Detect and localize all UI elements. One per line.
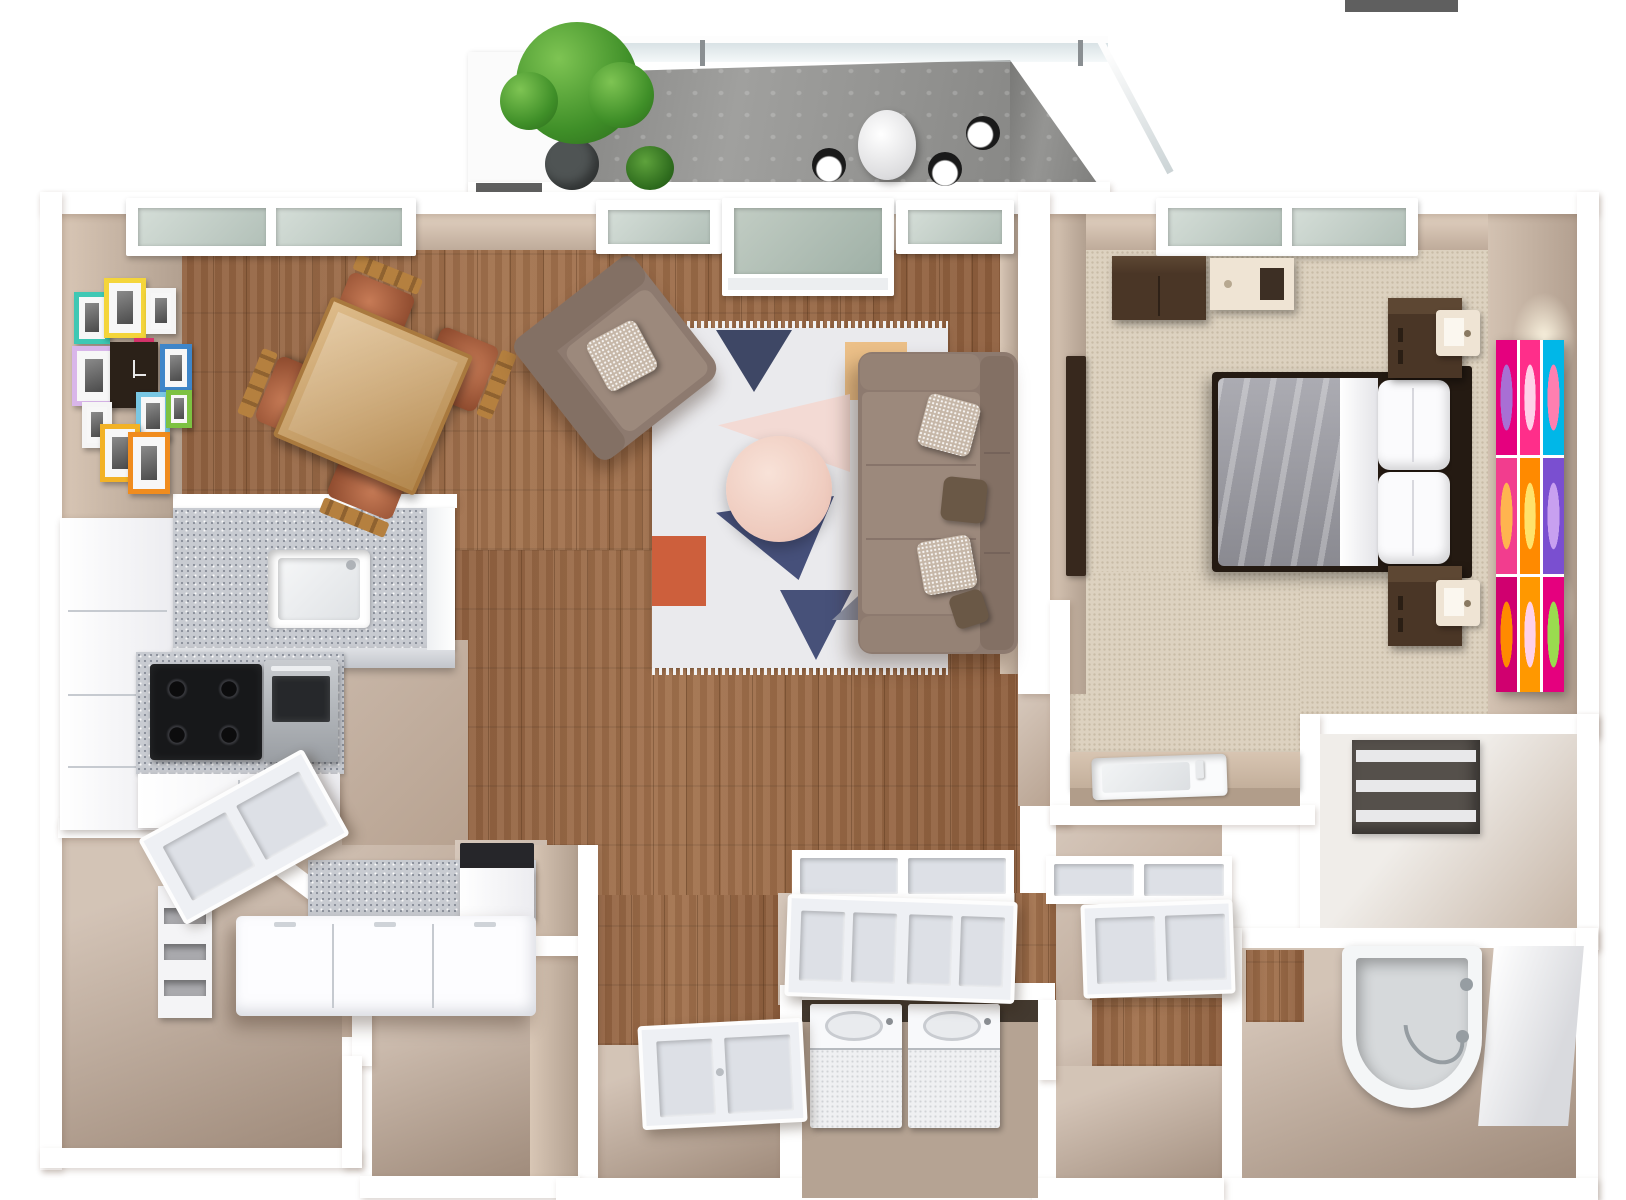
wall-divider-living-bedroom	[1018, 192, 1050, 694]
balcony-floor-wedge	[1010, 60, 1102, 190]
bathtub	[1342, 946, 1482, 1108]
sofa	[858, 352, 1018, 654]
wall-storage-right	[342, 1056, 362, 1168]
pop-art-cell	[1543, 577, 1564, 692]
floor-plan-canvas	[0, 0, 1626, 1200]
burner-icon	[164, 676, 190, 702]
sofa-armrest	[860, 354, 980, 390]
wall-bathroom-top	[1222, 928, 1596, 948]
tub-faucet-icon	[1456, 1030, 1469, 1043]
bathroom-right-panel	[1478, 946, 1584, 1126]
living-right-window	[896, 200, 1014, 254]
pop-art-cell	[1543, 458, 1564, 573]
bedroom-cube-shelf	[1210, 258, 1294, 310]
duvet-gray	[1218, 378, 1340, 566]
left-closet-double-door	[784, 894, 1017, 1004]
wall-bathroom-bottom	[1222, 1178, 1598, 1200]
balcony-glass-railing	[552, 36, 1108, 62]
pop-art-cell	[1496, 577, 1517, 692]
wall-left	[40, 192, 62, 1170]
exterior-ledge-under-planter	[476, 183, 542, 192]
pop-art-cell	[1496, 340, 1517, 455]
railing-post-icon	[1078, 40, 1083, 66]
throw-pillow-brown	[940, 476, 988, 524]
bed	[1212, 372, 1470, 572]
pop-art-cell	[1520, 458, 1541, 573]
picture-frame	[160, 344, 192, 392]
exterior-ledge-top-right	[1345, 0, 1458, 12]
picture-frame-collage	[72, 278, 194, 516]
counter-back-edge	[173, 494, 457, 508]
potted-tree-lobe-icon	[500, 72, 558, 130]
dryer	[908, 1004, 1000, 1128]
door-handle-icon	[716, 1068, 724, 1076]
bedroom-vanity-carpet	[1052, 572, 1300, 758]
wall-oven	[264, 660, 338, 762]
pop-art-canvas	[1496, 340, 1564, 692]
bistro-chair-icon	[966, 116, 1000, 150]
tub-faucet-icon	[1460, 978, 1473, 991]
clock-hand-icon	[133, 374, 146, 376]
bedroom-double-window	[1156, 198, 1418, 256]
kitchen-sink	[268, 550, 370, 628]
dresser	[1112, 256, 1206, 320]
dryer-lid-icon	[923, 1011, 981, 1041]
burner-icon	[164, 722, 190, 748]
rug-shape-navy-bottom-triangle	[780, 590, 852, 660]
wall-bedroom-right	[1577, 192, 1599, 738]
dishwasher-top	[460, 843, 534, 871]
wall-laundry-right	[1038, 1000, 1056, 1080]
picture-frame	[128, 432, 170, 494]
wall-vanity-west	[1050, 600, 1070, 825]
closet-back-frame-left	[792, 850, 1014, 902]
wall-linen-left	[1300, 714, 1320, 950]
cube-lamp	[1436, 310, 1480, 356]
railing-post-icon	[700, 40, 705, 66]
bathroom-threshold-wood	[1246, 950, 1304, 1022]
shrub-icon	[626, 146, 674, 190]
rug-shape-navy-chevron	[716, 330, 792, 392]
burner-icon	[216, 722, 242, 748]
balcony-patio-door	[722, 198, 894, 296]
bed-sheet	[1340, 378, 1378, 566]
pop-art-cell	[1543, 340, 1564, 455]
bed-pillow	[1378, 380, 1450, 470]
wall-linen-right	[1577, 714, 1599, 950]
control-knob-icon	[886, 1018, 893, 1025]
bistro-chair-icon	[928, 152, 962, 186]
tree-pot	[545, 138, 599, 190]
closet-back-frame-right	[1046, 856, 1232, 904]
wall-bedroom-bottom	[1300, 714, 1597, 734]
entry-door	[637, 1018, 807, 1130]
potted-tree-lobe-icon	[588, 62, 654, 128]
pop-art-cell	[1520, 577, 1541, 692]
round-coffee-table	[726, 436, 832, 542]
washer	[810, 1004, 902, 1128]
hall-floor-wood-lower	[1090, 998, 1222, 1066]
four-burner-cooktop	[150, 664, 262, 760]
balcony-railing-diagonal	[1096, 37, 1174, 174]
bed-pillow	[1378, 472, 1450, 564]
linen-shelf-unit	[1352, 740, 1480, 834]
pop-art-cell	[1496, 458, 1517, 573]
throw-pillow-sparkle	[916, 534, 979, 597]
vanity-sink	[1091, 754, 1227, 801]
entry-wall-face	[530, 845, 578, 1198]
burner-icon	[216, 676, 242, 702]
control-knob-icon	[984, 1018, 991, 1025]
rug-fringe-icon	[652, 321, 948, 328]
kitchen-island	[236, 916, 536, 1016]
counter-end-panel	[427, 508, 455, 650]
media-panel	[1066, 356, 1086, 576]
faucet-icon	[1195, 760, 1204, 778]
cube-lamp	[1436, 580, 1480, 626]
faucet-icon	[346, 560, 356, 570]
wall-bottom-hall	[1032, 1178, 1224, 1200]
living-left-window	[596, 200, 722, 254]
right-closet-double-door	[1080, 899, 1235, 998]
picture-frame	[166, 390, 192, 428]
picture-frame	[104, 278, 146, 338]
rug-shape-orange-square	[652, 536, 706, 606]
wall-room-b-bottom	[360, 1176, 580, 1198]
washer-lid-icon	[825, 1011, 883, 1041]
bistro-table	[858, 110, 916, 180]
picture-frame	[146, 288, 176, 334]
pop-art-cell	[1520, 340, 1541, 455]
wall-entry-left	[578, 845, 598, 1198]
wall-vanity-south	[1050, 805, 1315, 825]
wall-storage-bottom	[40, 1148, 362, 1168]
dining-double-window	[126, 198, 416, 256]
rug-fringe-icon	[652, 668, 948, 675]
headboard	[1452, 366, 1472, 578]
bistro-chair-icon	[812, 148, 846, 182]
